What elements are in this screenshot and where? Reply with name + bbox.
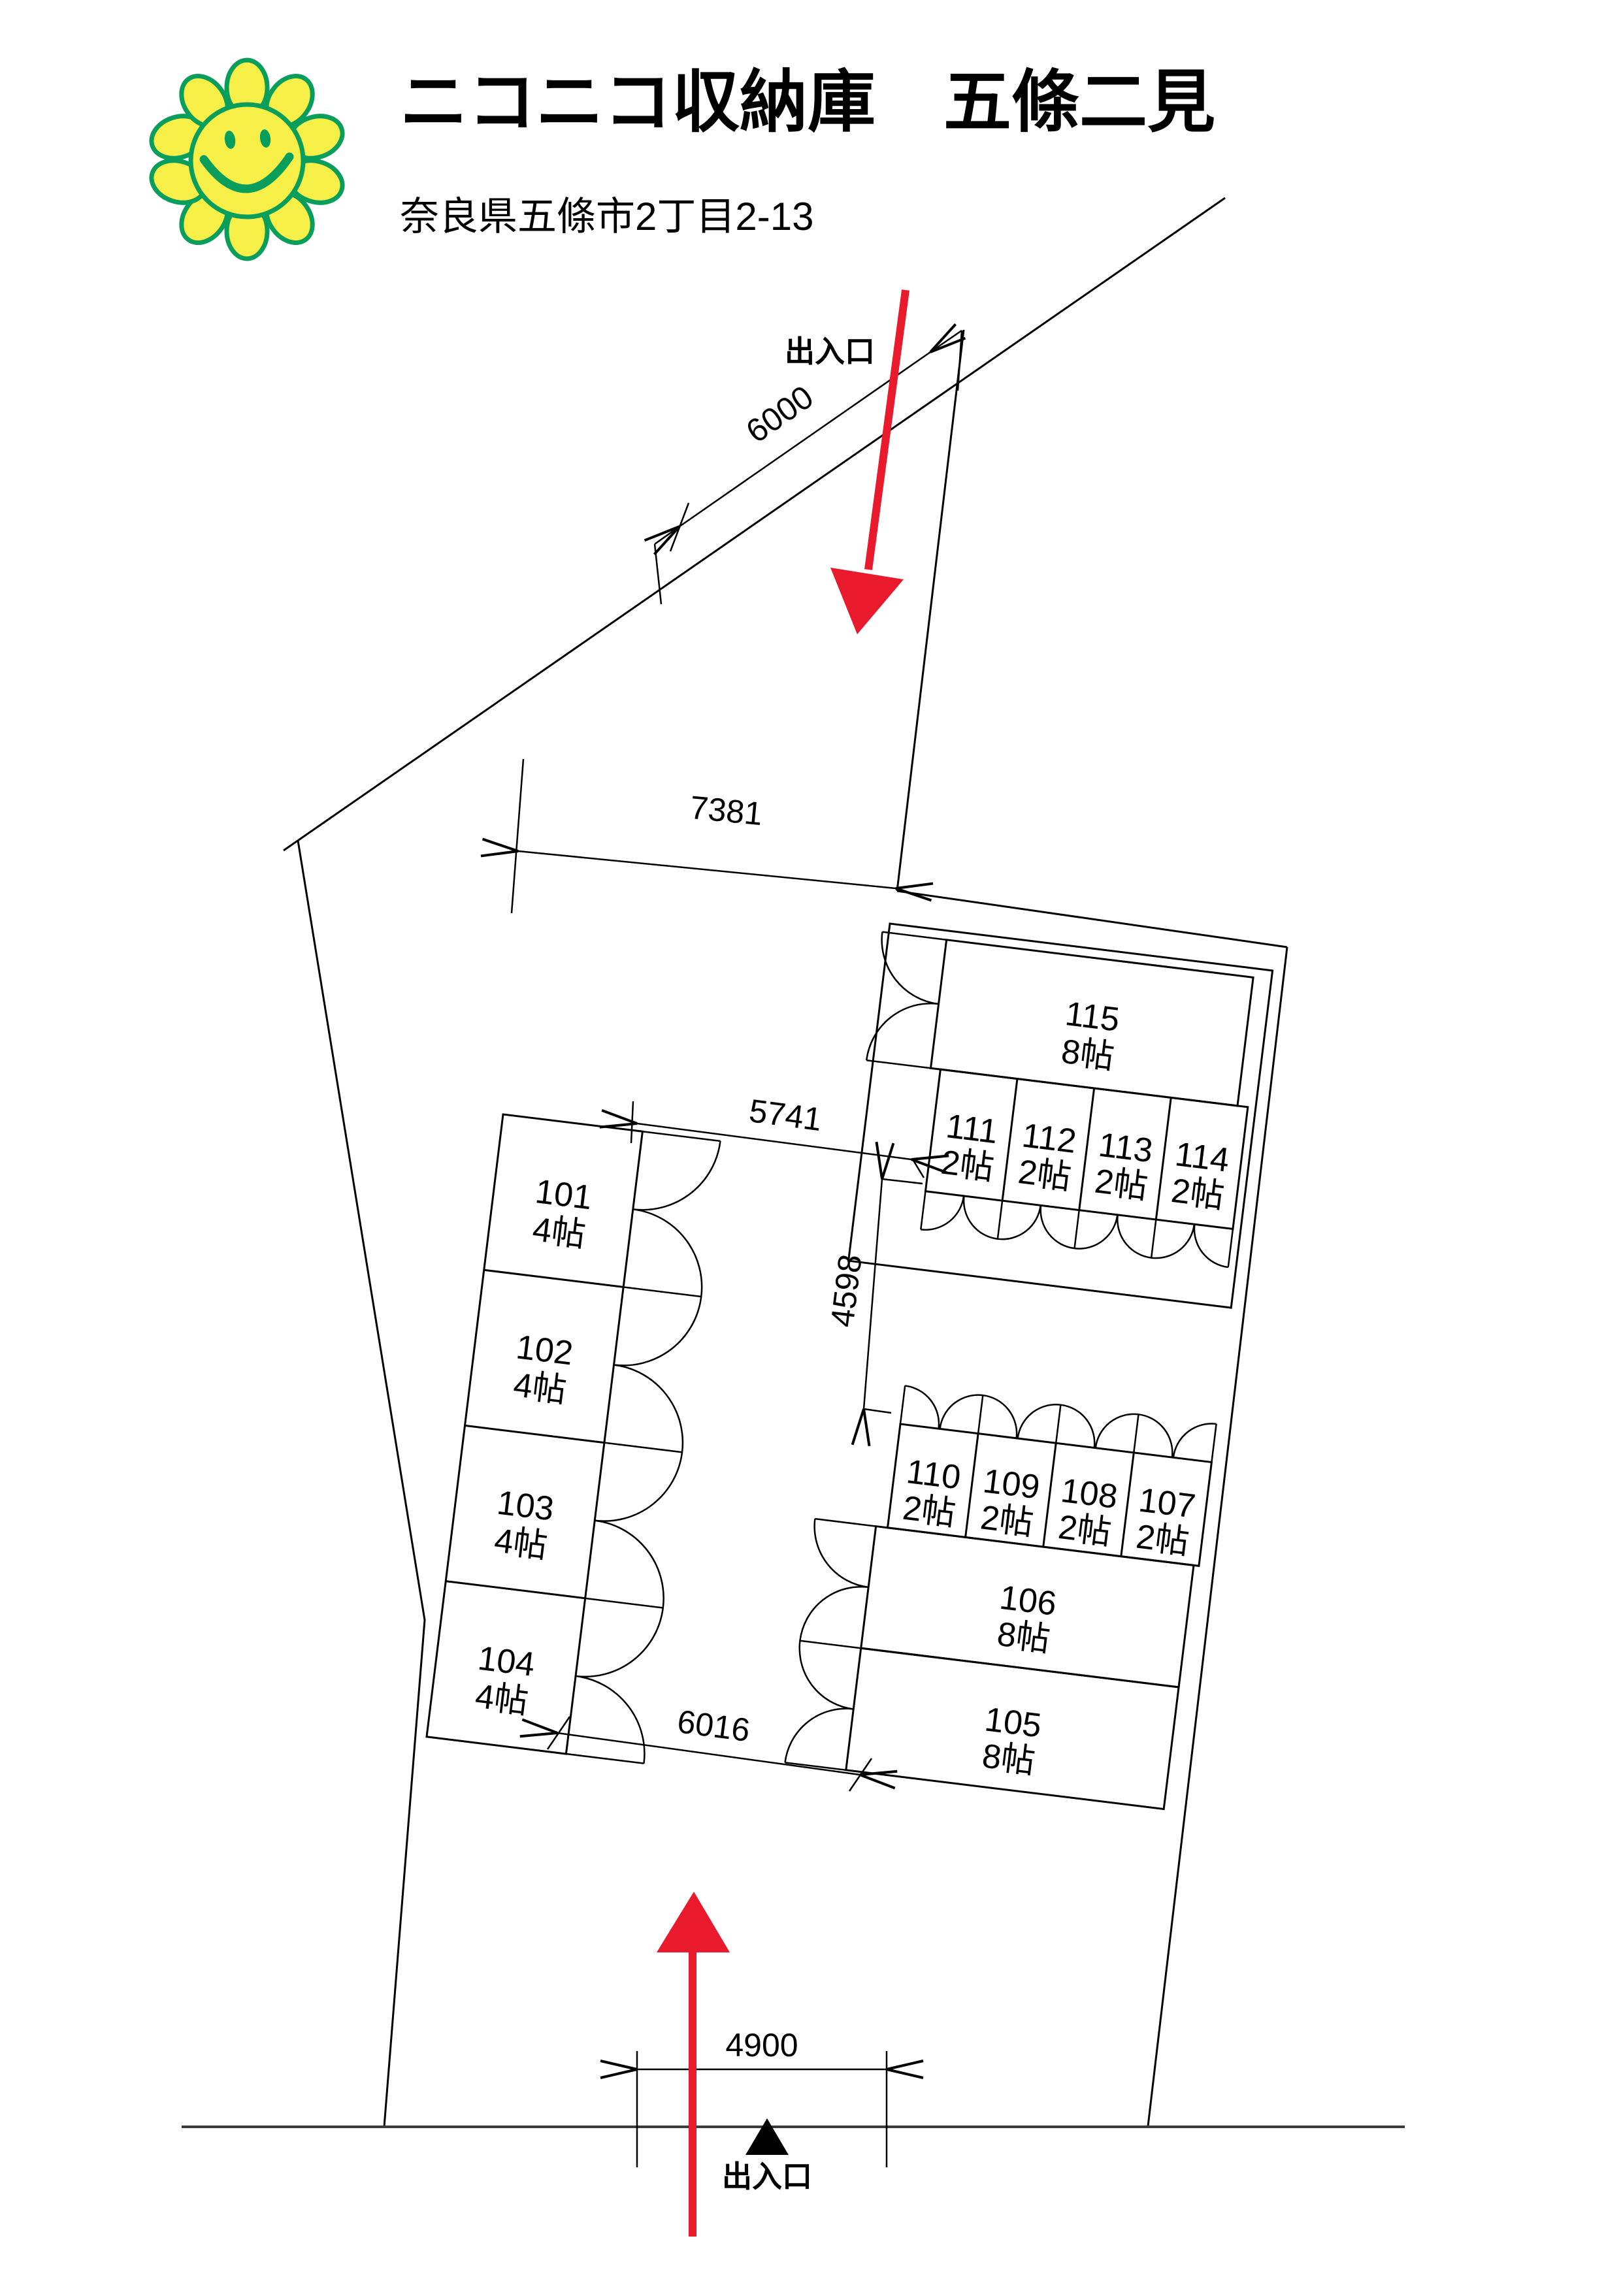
unit-105: 105 8帖 bbox=[978, 1700, 1043, 1781]
unit-size: 4帖 bbox=[512, 1366, 568, 1410]
unit-size: 8帖 bbox=[995, 1615, 1052, 1659]
unit-114: 114 2帖 bbox=[1168, 1135, 1231, 1216]
unit-size: 4帖 bbox=[531, 1210, 587, 1254]
unit-size: 2帖 bbox=[939, 1144, 996, 1188]
unit-size: 4帖 bbox=[473, 1677, 530, 1721]
header: ニコニコ収納庫 五條二見 奈良県五條市2丁目2-13 bbox=[146, 60, 1215, 259]
unit-104: 104 4帖 bbox=[471, 1640, 536, 1722]
smiley-flower-logo-icon bbox=[146, 60, 348, 259]
building-upper-right: 115 8帖 111 2帖 112 2帖 113 2帖 114 2帖 bbox=[842, 923, 1273, 1308]
dim-ext-5741-right bbox=[913, 1159, 924, 1178]
unit-113: 113 2帖 bbox=[1092, 1126, 1154, 1206]
unit-102: 102 4帖 bbox=[510, 1328, 575, 1410]
unit-size: 2帖 bbox=[1169, 1172, 1226, 1216]
entrance-marker-icon bbox=[745, 2118, 789, 2155]
entrance-bottom: 4900 出入口 bbox=[637, 1892, 887, 2237]
unit-size: 2帖 bbox=[978, 1498, 1035, 1542]
unit-size: 2帖 bbox=[1056, 1508, 1113, 1552]
unit-number: 115 bbox=[1063, 995, 1121, 1039]
road-boundary-line bbox=[284, 198, 1225, 850]
driveway-left-line bbox=[897, 330, 964, 891]
page-address: 奈良県五條市2丁目2-13 bbox=[400, 195, 813, 238]
door-leaf-lines bbox=[566, 1131, 720, 1763]
dim-text-7381: 7381 bbox=[689, 789, 764, 832]
unit-112: 112 2帖 bbox=[1015, 1116, 1078, 1197]
unit-number: 101 bbox=[533, 1172, 594, 1217]
dim-text-4900: 4900 bbox=[725, 2027, 798, 2063]
page-title: ニコニコ収納庫 五條二見 bbox=[400, 65, 1215, 140]
entry-arrow-up-icon bbox=[657, 1892, 730, 2237]
unit-size: 8帖 bbox=[1059, 1033, 1116, 1076]
building-left: 101 4帖 102 4帖 103 4帖 104 4帖 bbox=[427, 1114, 720, 1764]
unit-size: 2帖 bbox=[1092, 1162, 1149, 1206]
door-leaf-lines bbox=[847, 932, 1264, 1267]
unit-number: 104 bbox=[476, 1640, 536, 1684]
unit-size: 2帖 bbox=[900, 1489, 957, 1533]
unit-size: 4帖 bbox=[492, 1521, 549, 1565]
unit-number: 102 bbox=[514, 1328, 575, 1372]
dim-text-4598: 4598 bbox=[824, 1252, 869, 1329]
dim-text-6000: 6000 bbox=[740, 378, 820, 450]
unit-110: 110 2帖 bbox=[900, 1453, 962, 1533]
entrance-bottom-label: 出入口 bbox=[722, 2159, 812, 2193]
dim-text-6016: 6016 bbox=[675, 1703, 752, 1749]
boundary-step-line bbox=[897, 891, 1287, 947]
entrance-top: 6000 出入口 bbox=[655, 290, 962, 634]
unit-106: 106 8帖 bbox=[993, 1579, 1058, 1660]
dim-ext-7381-left bbox=[512, 759, 523, 913]
unit-109: 109 2帖 bbox=[977, 1462, 1042, 1543]
door-swing-arcs bbox=[847, 932, 1264, 1267]
unit-number: 103 bbox=[495, 1484, 556, 1528]
dim-line-7381 bbox=[518, 851, 896, 888]
unit-size: 2帖 bbox=[1134, 1518, 1191, 1562]
unit-107: 107 2帖 bbox=[1132, 1481, 1198, 1562]
unit-108: 108 2帖 bbox=[1055, 1472, 1120, 1553]
unit-115: 115 8帖 bbox=[1058, 995, 1121, 1076]
building-lower-right: 110 2帖 109 2帖 108 2帖 107 2帖 106 8帖 105 8… bbox=[785, 1377, 1217, 1810]
unit-size: 8帖 bbox=[980, 1737, 1037, 1781]
left-boundary-line bbox=[298, 841, 425, 2127]
unit-111: 111 2帖 bbox=[939, 1107, 1000, 1188]
dim-ext-4598-bottom bbox=[864, 1409, 891, 1413]
dim-ext-4598-top bbox=[882, 1179, 923, 1184]
unit-103: 103 4帖 bbox=[491, 1484, 556, 1566]
entrance-top-label: 出入口 bbox=[785, 334, 875, 368]
dim-ticks-6000 bbox=[655, 331, 962, 604]
dim-line-4598 bbox=[864, 1179, 882, 1409]
dim-text-5741: 5741 bbox=[747, 1092, 824, 1138]
building-outline bbox=[849, 924, 1273, 1308]
unit-101: 101 4帖 bbox=[529, 1172, 594, 1255]
unit-size: 2帖 bbox=[1016, 1153, 1073, 1197]
site-plan-page: ニコニコ収納庫 五條二見 奈良県五條市2丁目2-13 6000 出入口 7381… bbox=[0, 0, 1621, 2296]
dim-ext-5741-left bbox=[631, 1101, 633, 1143]
